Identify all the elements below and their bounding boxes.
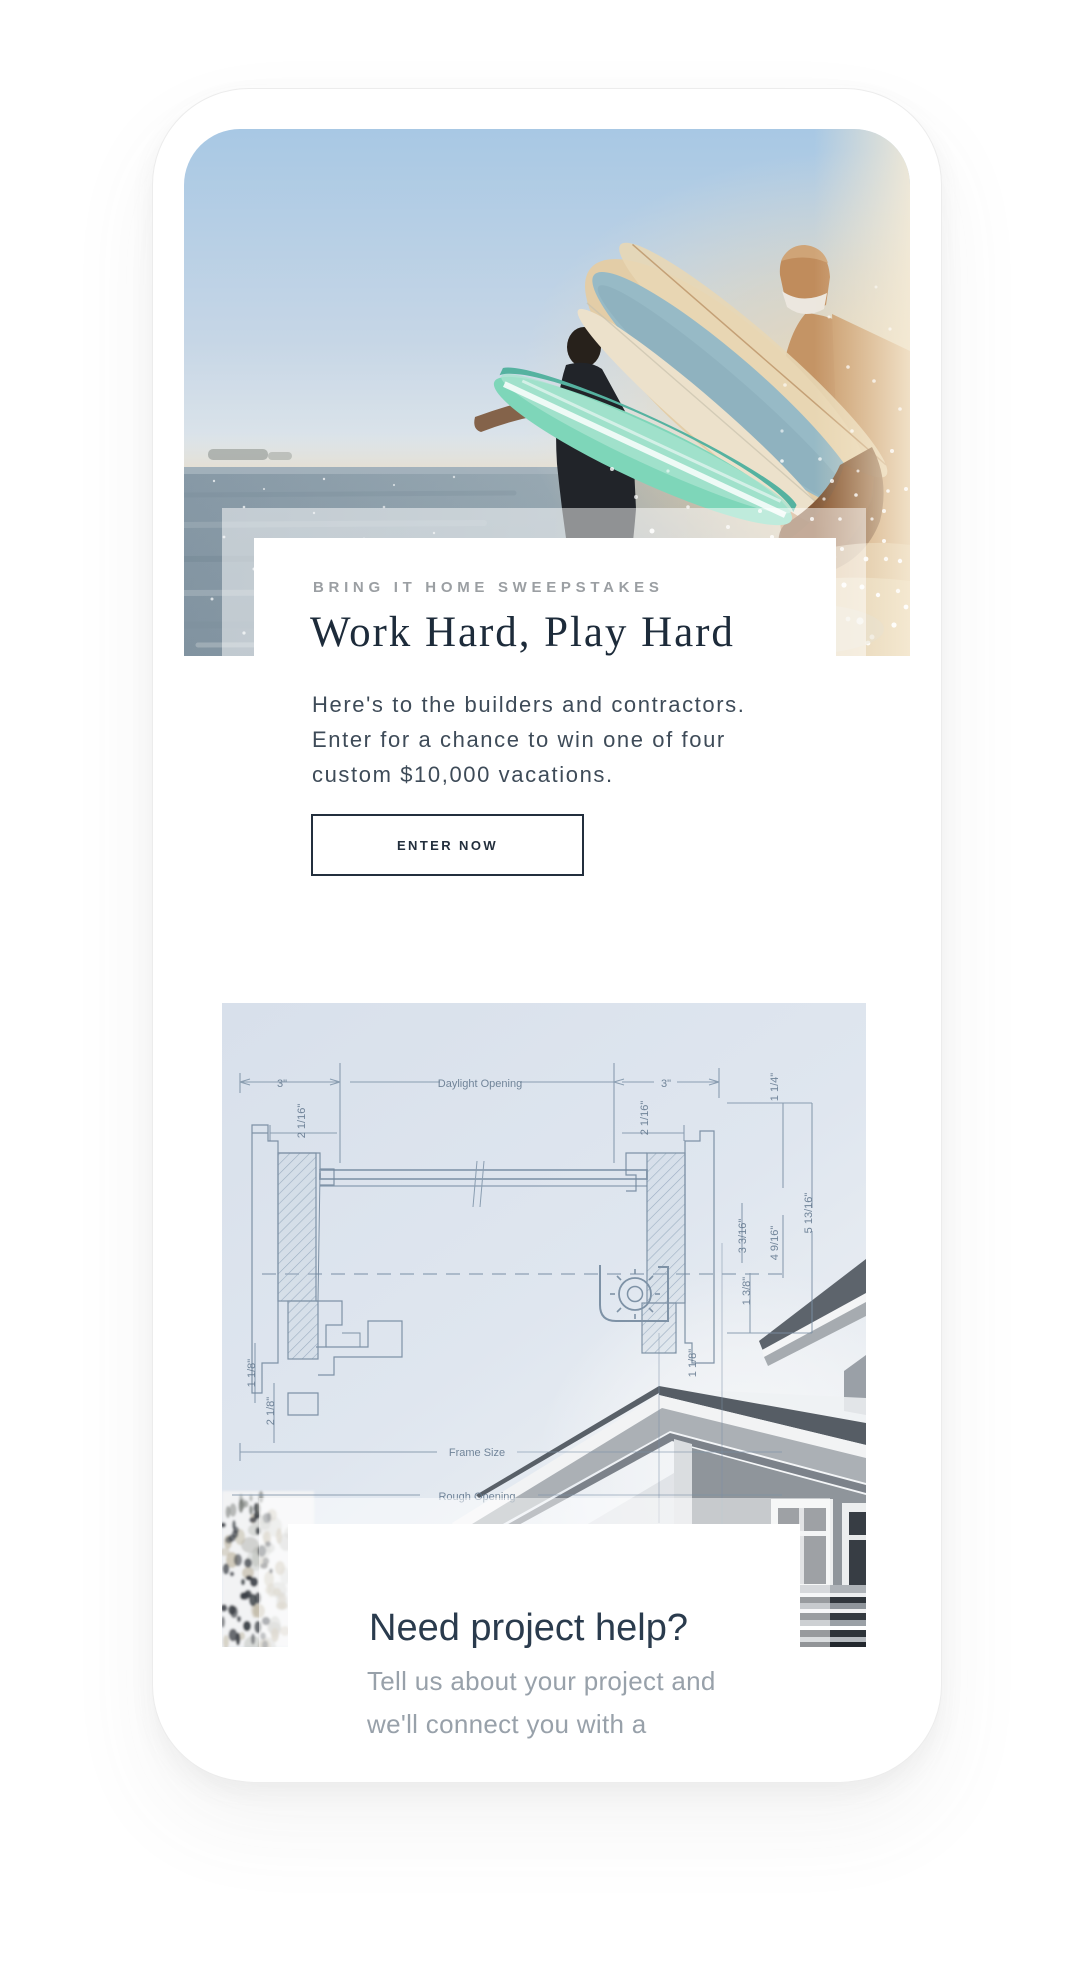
svg-text:3": 3"	[277, 1078, 287, 1090]
svg-text:2 1/16": 2 1/16"	[296, 1104, 308, 1139]
svg-text:1 1/8": 1 1/8"	[687, 1349, 699, 1377]
svg-text:2 1/16": 2 1/16"	[639, 1101, 651, 1136]
svg-text:1 1/4": 1 1/4"	[769, 1073, 781, 1101]
svg-text:1 1/8": 1 1/8"	[246, 1359, 258, 1387]
svg-text:Frame Size: Frame Size	[449, 1447, 505, 1459]
svg-text:4 9/16": 4 9/16"	[769, 1226, 781, 1261]
svg-text:2 1/8": 2 1/8"	[265, 1397, 277, 1425]
svg-text:3 3/16": 3 3/16"	[737, 1219, 749, 1254]
svg-text:1 3/8": 1 3/8"	[741, 1277, 753, 1305]
svg-text:3": 3"	[661, 1078, 671, 1090]
svg-text:Daylight Opening: Daylight Opening	[438, 1078, 522, 1090]
svg-text:5 13/16": 5 13/16"	[803, 1193, 815, 1234]
